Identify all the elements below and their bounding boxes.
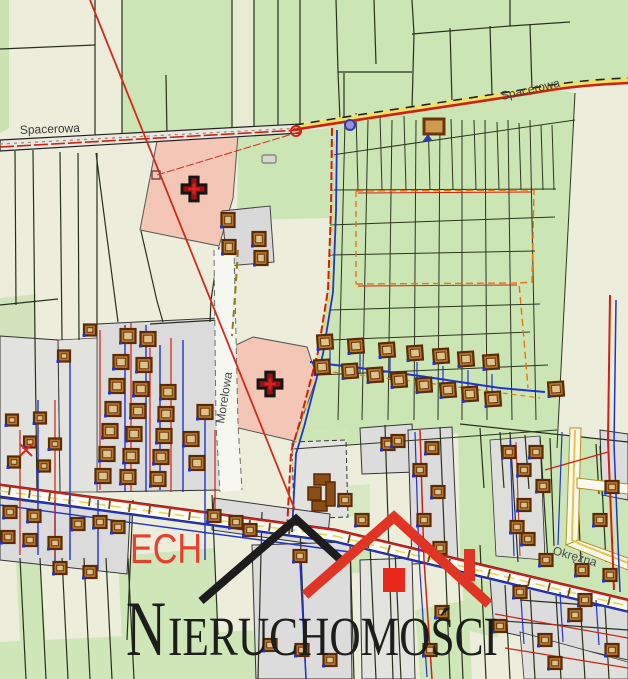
svg-text:N: N (126, 585, 166, 672)
svg-text:IERUCHOMOŚCI: IERUCHOMOŚCI (168, 606, 498, 667)
svg-text:ECH: ECH (130, 525, 202, 572)
svg-text:Spacerowa: Spacerowa (20, 121, 81, 137)
